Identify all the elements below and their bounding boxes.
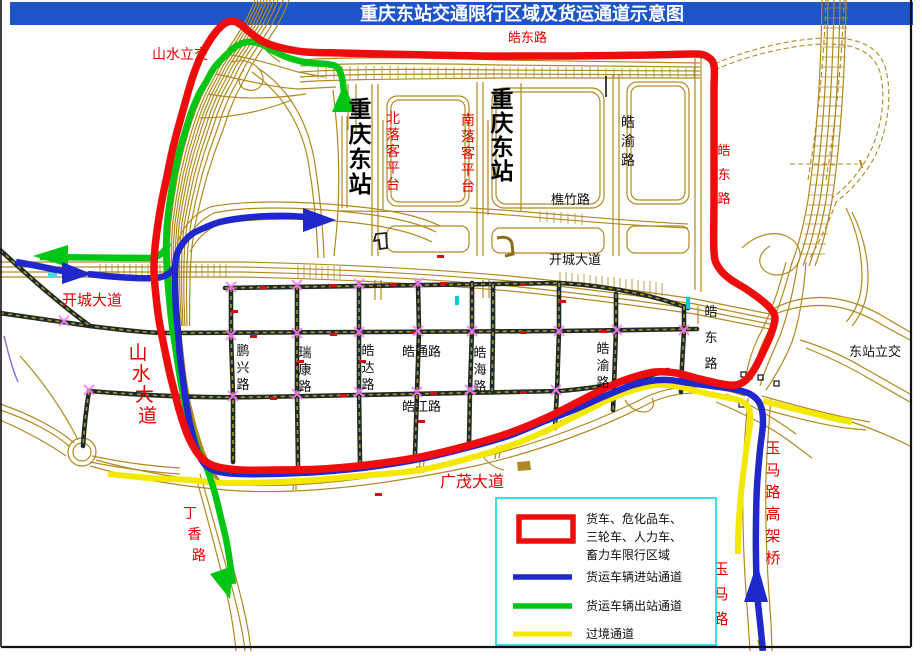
svg-text:皓: 皓 (704, 304, 717, 319)
svg-text:皓: 皓 (717, 143, 730, 158)
svg-text:鹏: 鹏 (236, 343, 249, 358)
svg-text:道: 道 (138, 405, 157, 427)
svg-text:大: 大 (135, 384, 154, 406)
svg-text:站: 站 (491, 158, 514, 184)
svg-text:高: 高 (765, 506, 780, 523)
svg-text:客: 客 (386, 143, 400, 159)
svg-text:路: 路 (473, 379, 486, 394)
svg-text:路: 路 (236, 377, 249, 392)
svg-text:路: 路 (765, 484, 780, 501)
svg-text:渝: 渝 (621, 133, 635, 149)
svg-text:东站立交: 东站立交 (849, 344, 901, 359)
svg-text:路: 路 (192, 547, 206, 563)
svg-text:路: 路 (717, 191, 730, 206)
svg-text:皓通路: 皓通路 (402, 344, 441, 359)
svg-text:平: 平 (461, 162, 475, 178)
svg-text:台: 台 (461, 178, 475, 194)
svg-text:康: 康 (298, 362, 311, 377)
svg-text:马: 马 (765, 462, 780, 479)
svg-text:重: 重 (491, 86, 514, 112)
svg-text:庆: 庆 (491, 110, 514, 136)
svg-text:路: 路 (596, 375, 609, 390)
svg-text:货运车辆出站通道: 货运车辆出站通道 (586, 598, 682, 613)
svg-text:路: 路 (298, 379, 311, 394)
svg-text:庆: 庆 (349, 121, 372, 147)
svg-text:台: 台 (386, 176, 400, 192)
svg-text:路: 路 (361, 377, 374, 392)
svg-text:兴: 兴 (236, 360, 249, 375)
svg-text:东: 东 (349, 146, 372, 172)
svg-text:重庆东站交通限行区域及货运通道示意图: 重庆东站交通限行区域及货运通道示意图 (360, 3, 684, 24)
svg-text:樵竹路: 樵竹路 (551, 192, 590, 207)
svg-text:路: 路 (704, 356, 717, 371)
svg-text:平: 平 (386, 160, 400, 176)
svg-text:货车、危化品车、: 货车、危化品车、 (586, 511, 682, 526)
svg-text:丁: 丁 (183, 505, 197, 521)
svg-text:东: 东 (704, 330, 717, 345)
svg-text:山水立交: 山水立交 (152, 46, 208, 62)
svg-text:开城大道: 开城大道 (62, 292, 122, 309)
svg-text:三轮车、人力车、: 三轮车、人力车、 (586, 529, 682, 544)
svg-text:过境通道: 过境通道 (586, 626, 634, 641)
svg-text:北: 北 (386, 110, 400, 126)
svg-text:东: 东 (717, 167, 730, 182)
svg-text:山: 山 (128, 342, 147, 364)
svg-text:开城大道: 开城大道 (549, 252, 601, 267)
svg-text:皓江路: 皓江路 (402, 399, 441, 414)
svg-text:东: 东 (491, 134, 514, 160)
svg-text:南: 南 (461, 112, 475, 128)
svg-text:畜力车限行区域: 畜力车限行区域 (586, 547, 670, 562)
svg-text:瑞: 瑞 (298, 345, 311, 360)
svg-text:重: 重 (349, 96, 372, 122)
svg-text:皓: 皓 (473, 345, 486, 360)
svg-text:皓: 皓 (596, 341, 609, 356)
svg-text:站: 站 (349, 171, 372, 197)
svg-text:落: 落 (461, 129, 475, 145)
svg-text:路: 路 (621, 152, 635, 168)
svg-text:广茂大道: 广茂大道 (440, 473, 504, 491)
svg-text:海: 海 (473, 362, 486, 377)
svg-text:渝: 渝 (596, 358, 609, 373)
svg-text:皓: 皓 (361, 343, 374, 358)
svg-text:架: 架 (765, 528, 780, 545)
svg-text:落: 落 (386, 127, 400, 143)
svg-text:皓: 皓 (621, 114, 635, 130)
svg-text:水: 水 (132, 363, 151, 385)
svg-text:货运车辆进站通道: 货运车辆进站通道 (586, 569, 682, 584)
svg-text:皓东路: 皓东路 (508, 30, 547, 45)
svg-text:达: 达 (361, 360, 374, 375)
svg-text:桥: 桥 (765, 550, 780, 567)
svg-text:香: 香 (188, 526, 202, 542)
svg-text:客: 客 (461, 145, 475, 161)
svg-text:玉: 玉 (765, 440, 780, 457)
